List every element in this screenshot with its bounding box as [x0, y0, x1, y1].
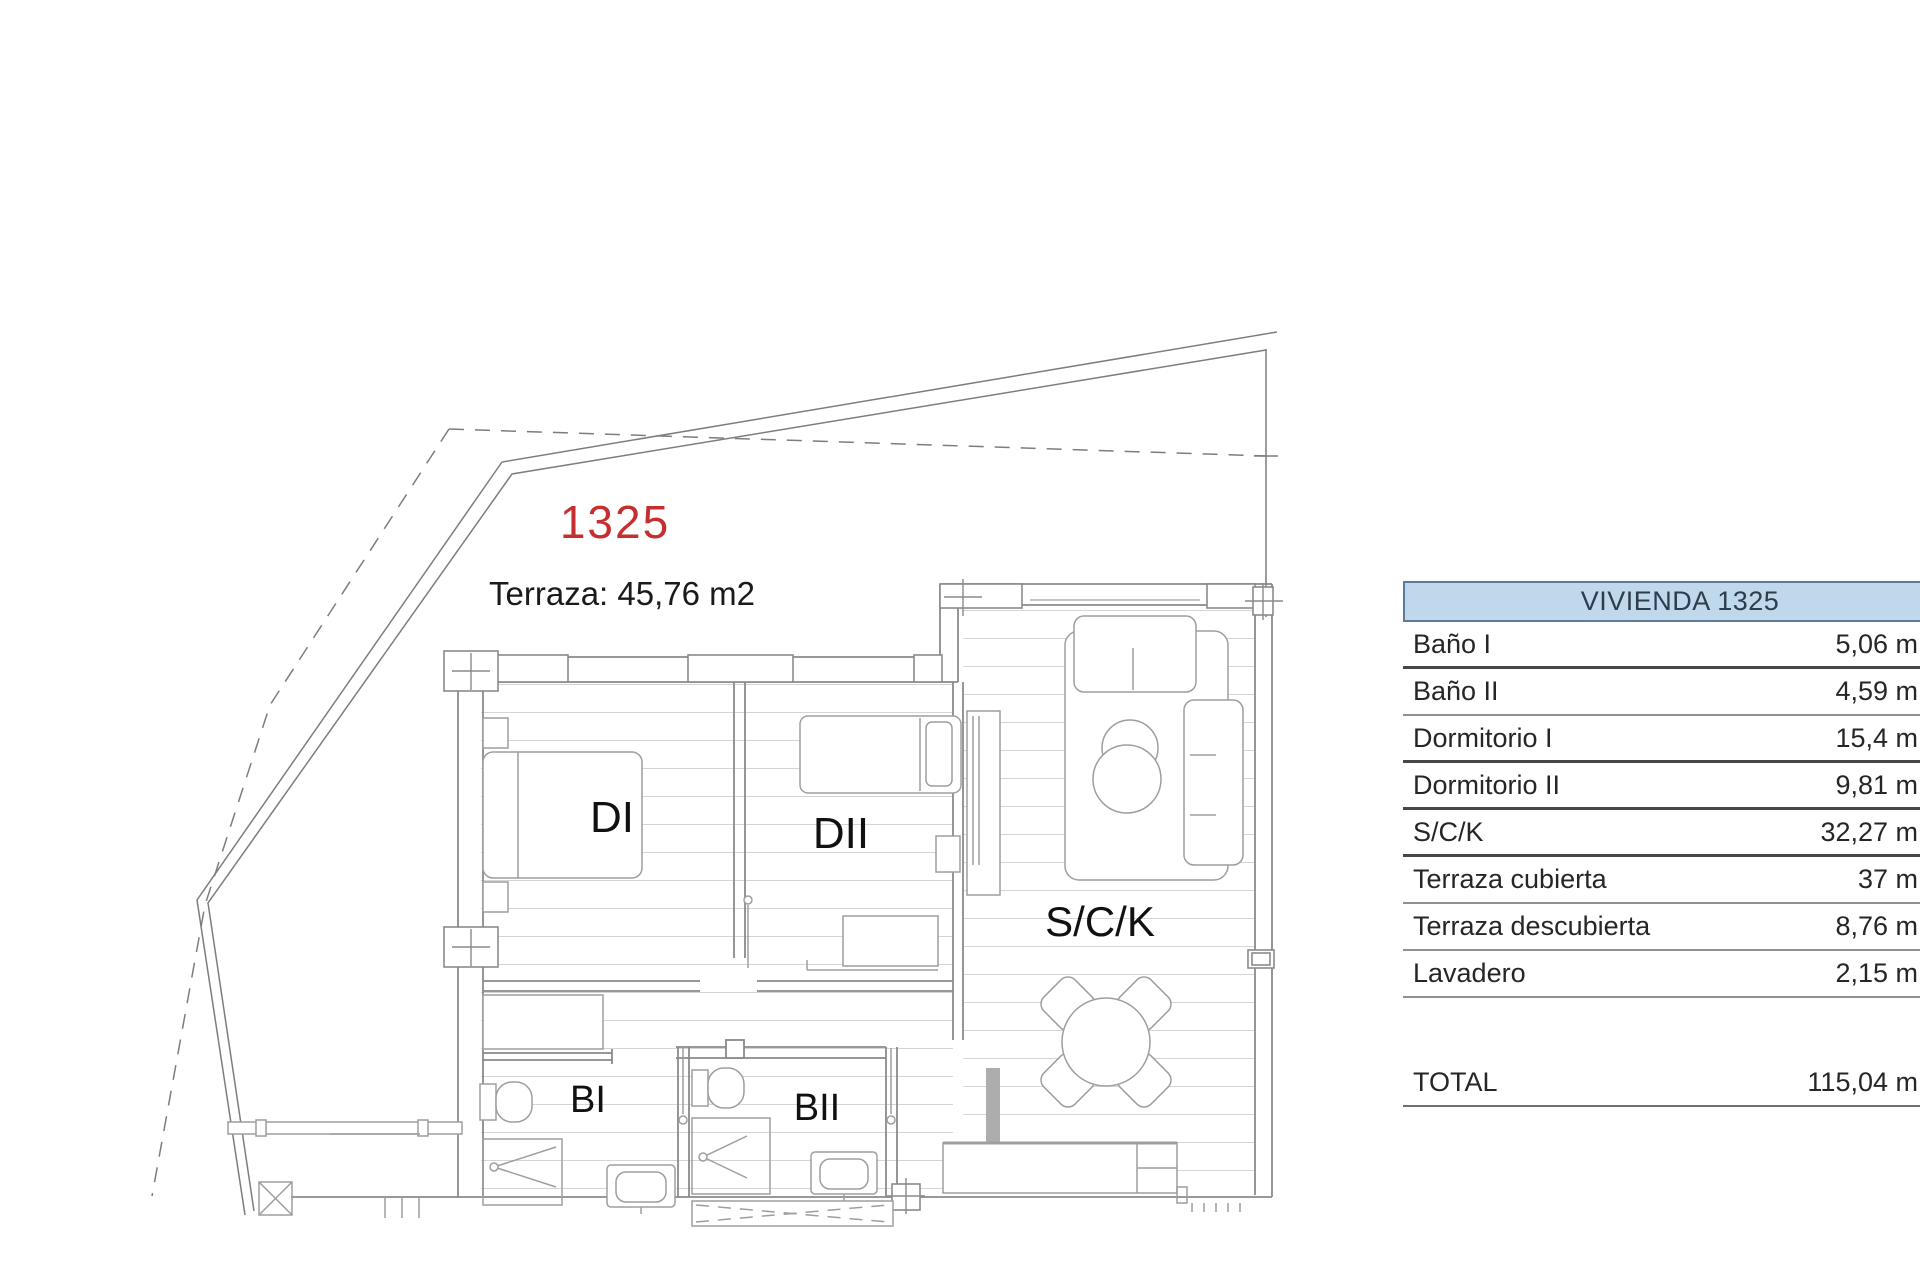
row-label: S/C/K [1413, 817, 1484, 848]
table-total-row: TOTAL 115,04 m [1403, 1059, 1920, 1107]
table-row: Terraza cubierta 37 m [1403, 857, 1920, 904]
room-label-d2: DII [813, 809, 869, 858]
area-table-title: VIVIENDA 1325 [1581, 586, 1780, 617]
row-value: 15,4 m [1835, 723, 1918, 754]
room-label-d1: DI [590, 793, 634, 842]
table-row: Lavadero 2,15 m [1403, 951, 1920, 998]
row-label: Dormitorio I [1413, 723, 1553, 754]
row-value: 4,59 m [1835, 676, 1918, 707]
table-row: Baño I 5,06 m [1403, 622, 1920, 669]
area-table-header: VIVIENDA 1325 [1403, 581, 1920, 622]
row-label: Terraza cubierta [1413, 864, 1607, 895]
table-spacer [1403, 998, 1920, 1059]
table-row: Baño II 4,59 m [1403, 669, 1920, 716]
row-value: 9,81 m [1835, 770, 1918, 801]
unit-number-label: 1325 [560, 496, 670, 548]
room-label-b1: BI [570, 1079, 606, 1121]
total-label: TOTAL [1413, 1067, 1498, 1098]
area-table: VIVIENDA 1325 Baño I 5,06 m Baño II 4,59… [1403, 581, 1920, 1107]
table-row: Dormitorio I 15,4 m [1403, 716, 1920, 763]
row-value: 8,76 m [1835, 911, 1918, 942]
row-value: 5,06 m [1835, 629, 1918, 660]
room-label-b2: BII [794, 1087, 840, 1129]
table-row: Dormitorio II 9,81 m [1403, 763, 1920, 810]
total-value: 115,04 m [1807, 1067, 1918, 1098]
row-label: Lavadero [1413, 958, 1526, 989]
row-label: Baño II [1413, 676, 1499, 707]
table-row: S/C/K 32,27 m [1403, 810, 1920, 857]
row-value: 2,15 m [1835, 958, 1918, 989]
row-value: 32,27 m [1820, 817, 1918, 848]
row-label: Terraza descubierta [1413, 911, 1650, 942]
table-row: Terraza descubierta 8,76 m [1403, 904, 1920, 951]
terrace-area-label: Terraza: 45,76 m2 [489, 575, 755, 612]
row-label: Dormitorio II [1413, 770, 1560, 801]
room-label-sck: S/C/K [1045, 898, 1155, 945]
row-value: 37 m [1858, 864, 1918, 895]
row-label: Baño I [1413, 629, 1491, 660]
